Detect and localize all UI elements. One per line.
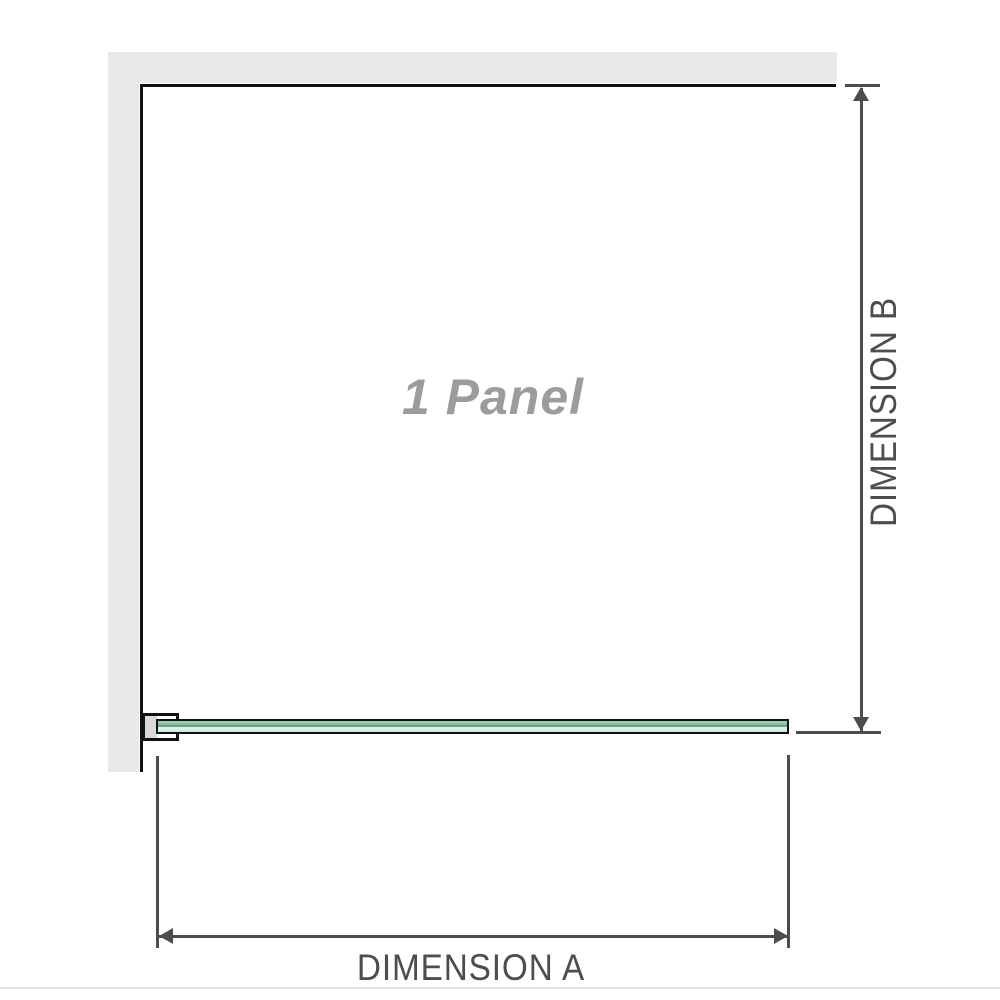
dimension-b-label: DIMENSION B (863, 297, 905, 527)
wall-left-band (108, 52, 139, 772)
arrowhead-left-icon (159, 928, 173, 944)
dimension-a-left-extension-line (156, 756, 159, 948)
panel-face: 1 Panel (141, 85, 845, 709)
wall-top-band (108, 52, 837, 83)
arrowhead-up-icon (853, 87, 869, 101)
dimension-b-bottom-tick (796, 731, 881, 734)
glass-panel-top-view (156, 719, 789, 734)
arrowhead-down-icon (853, 717, 869, 731)
panel-count-label: 1 Panel (402, 368, 584, 426)
bottom-divider (0, 987, 1000, 989)
arrowhead-right-icon (774, 928, 788, 944)
dimension-a-label: DIMENSION A (357, 947, 585, 989)
dimension-a-right-extension-line (787, 755, 790, 948)
dimension-a-line (158, 935, 789, 938)
panel-dimension-diagram: 1 Panel DIMENSION B DIMENSION A (0, 0, 1000, 1000)
